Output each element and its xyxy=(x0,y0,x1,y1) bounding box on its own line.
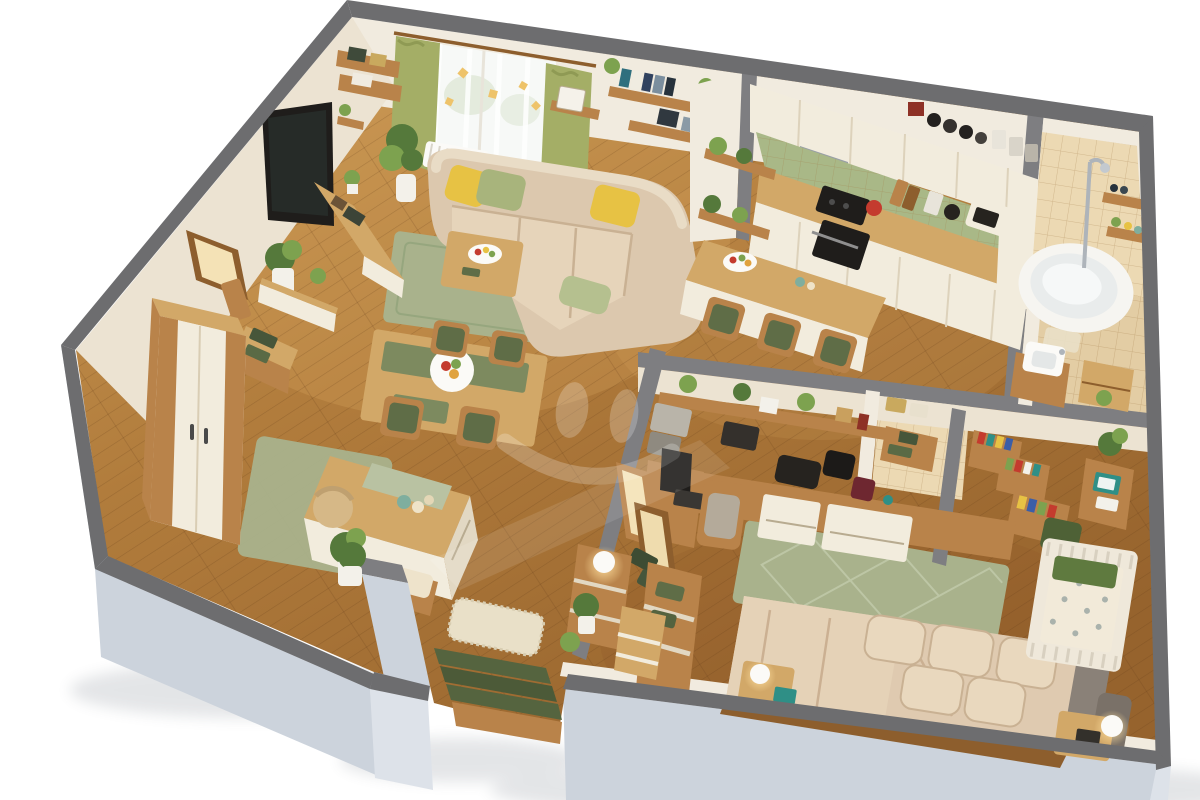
plant-pot xyxy=(342,566,362,586)
console-plant xyxy=(344,170,360,186)
burner xyxy=(829,199,835,205)
plant-pot xyxy=(578,616,595,634)
bath-plant xyxy=(1111,217,1121,227)
table-lamp xyxy=(750,664,770,684)
burner xyxy=(843,203,849,209)
food xyxy=(441,361,451,371)
fruit-platter xyxy=(723,252,757,272)
shelf-frame xyxy=(759,397,779,415)
fruit xyxy=(730,257,737,264)
shelf-plant xyxy=(604,58,620,74)
toiletry xyxy=(1134,226,1142,234)
kids-desk xyxy=(1078,458,1134,530)
food xyxy=(449,369,459,379)
lit-table-lamp xyxy=(593,551,615,573)
shower-head xyxy=(1100,163,1110,173)
island-jar xyxy=(412,501,424,513)
coffee-table xyxy=(440,230,524,297)
shelf-frame xyxy=(835,407,853,424)
red-bowl xyxy=(866,200,882,216)
fruit xyxy=(475,249,482,256)
door-handle xyxy=(204,428,208,444)
toiletry xyxy=(1124,222,1132,230)
console-plant-pot xyxy=(347,184,358,194)
sideboard-plant xyxy=(310,268,326,284)
bottle xyxy=(807,282,815,290)
red-box xyxy=(908,102,924,116)
wardrobe xyxy=(142,298,246,545)
bottle xyxy=(795,277,805,287)
fruit xyxy=(489,251,495,257)
shelf-plant xyxy=(797,393,815,411)
plant-pot xyxy=(396,174,416,202)
fruit xyxy=(745,260,752,267)
shelf-plant xyxy=(339,104,351,116)
tv-screen xyxy=(268,110,328,216)
picture-frame xyxy=(556,86,585,112)
maroon-bag xyxy=(850,476,876,502)
table-lamp xyxy=(1101,715,1123,737)
fruit xyxy=(483,247,489,253)
desk-item xyxy=(883,495,893,505)
stair-plant xyxy=(338,542,366,570)
toiletry xyxy=(1120,186,1128,194)
shelf-plant xyxy=(733,383,751,401)
island-jar xyxy=(424,495,434,505)
food xyxy=(451,359,461,369)
floorplan-render xyxy=(0,0,1200,800)
nursery-plant xyxy=(1112,428,1128,444)
door-handle xyxy=(190,424,194,440)
hall-plant xyxy=(560,632,580,652)
white-crib xyxy=(1025,537,1139,673)
floor-plant xyxy=(282,240,302,260)
floorplan-canvas xyxy=(0,0,1200,800)
toiletry xyxy=(1110,184,1118,192)
vanity-plant xyxy=(1096,390,1112,406)
shelf-plant xyxy=(679,375,697,393)
fruit xyxy=(739,255,746,262)
hall-plant xyxy=(573,593,599,619)
faucet xyxy=(1059,349,1065,355)
storage-box xyxy=(909,403,929,419)
desk-chair xyxy=(696,479,749,550)
island-jar xyxy=(397,495,411,509)
chair-pad xyxy=(703,492,741,540)
stair-bay-face xyxy=(370,689,433,790)
dining-set xyxy=(360,319,548,450)
coffee-machine xyxy=(944,204,960,220)
